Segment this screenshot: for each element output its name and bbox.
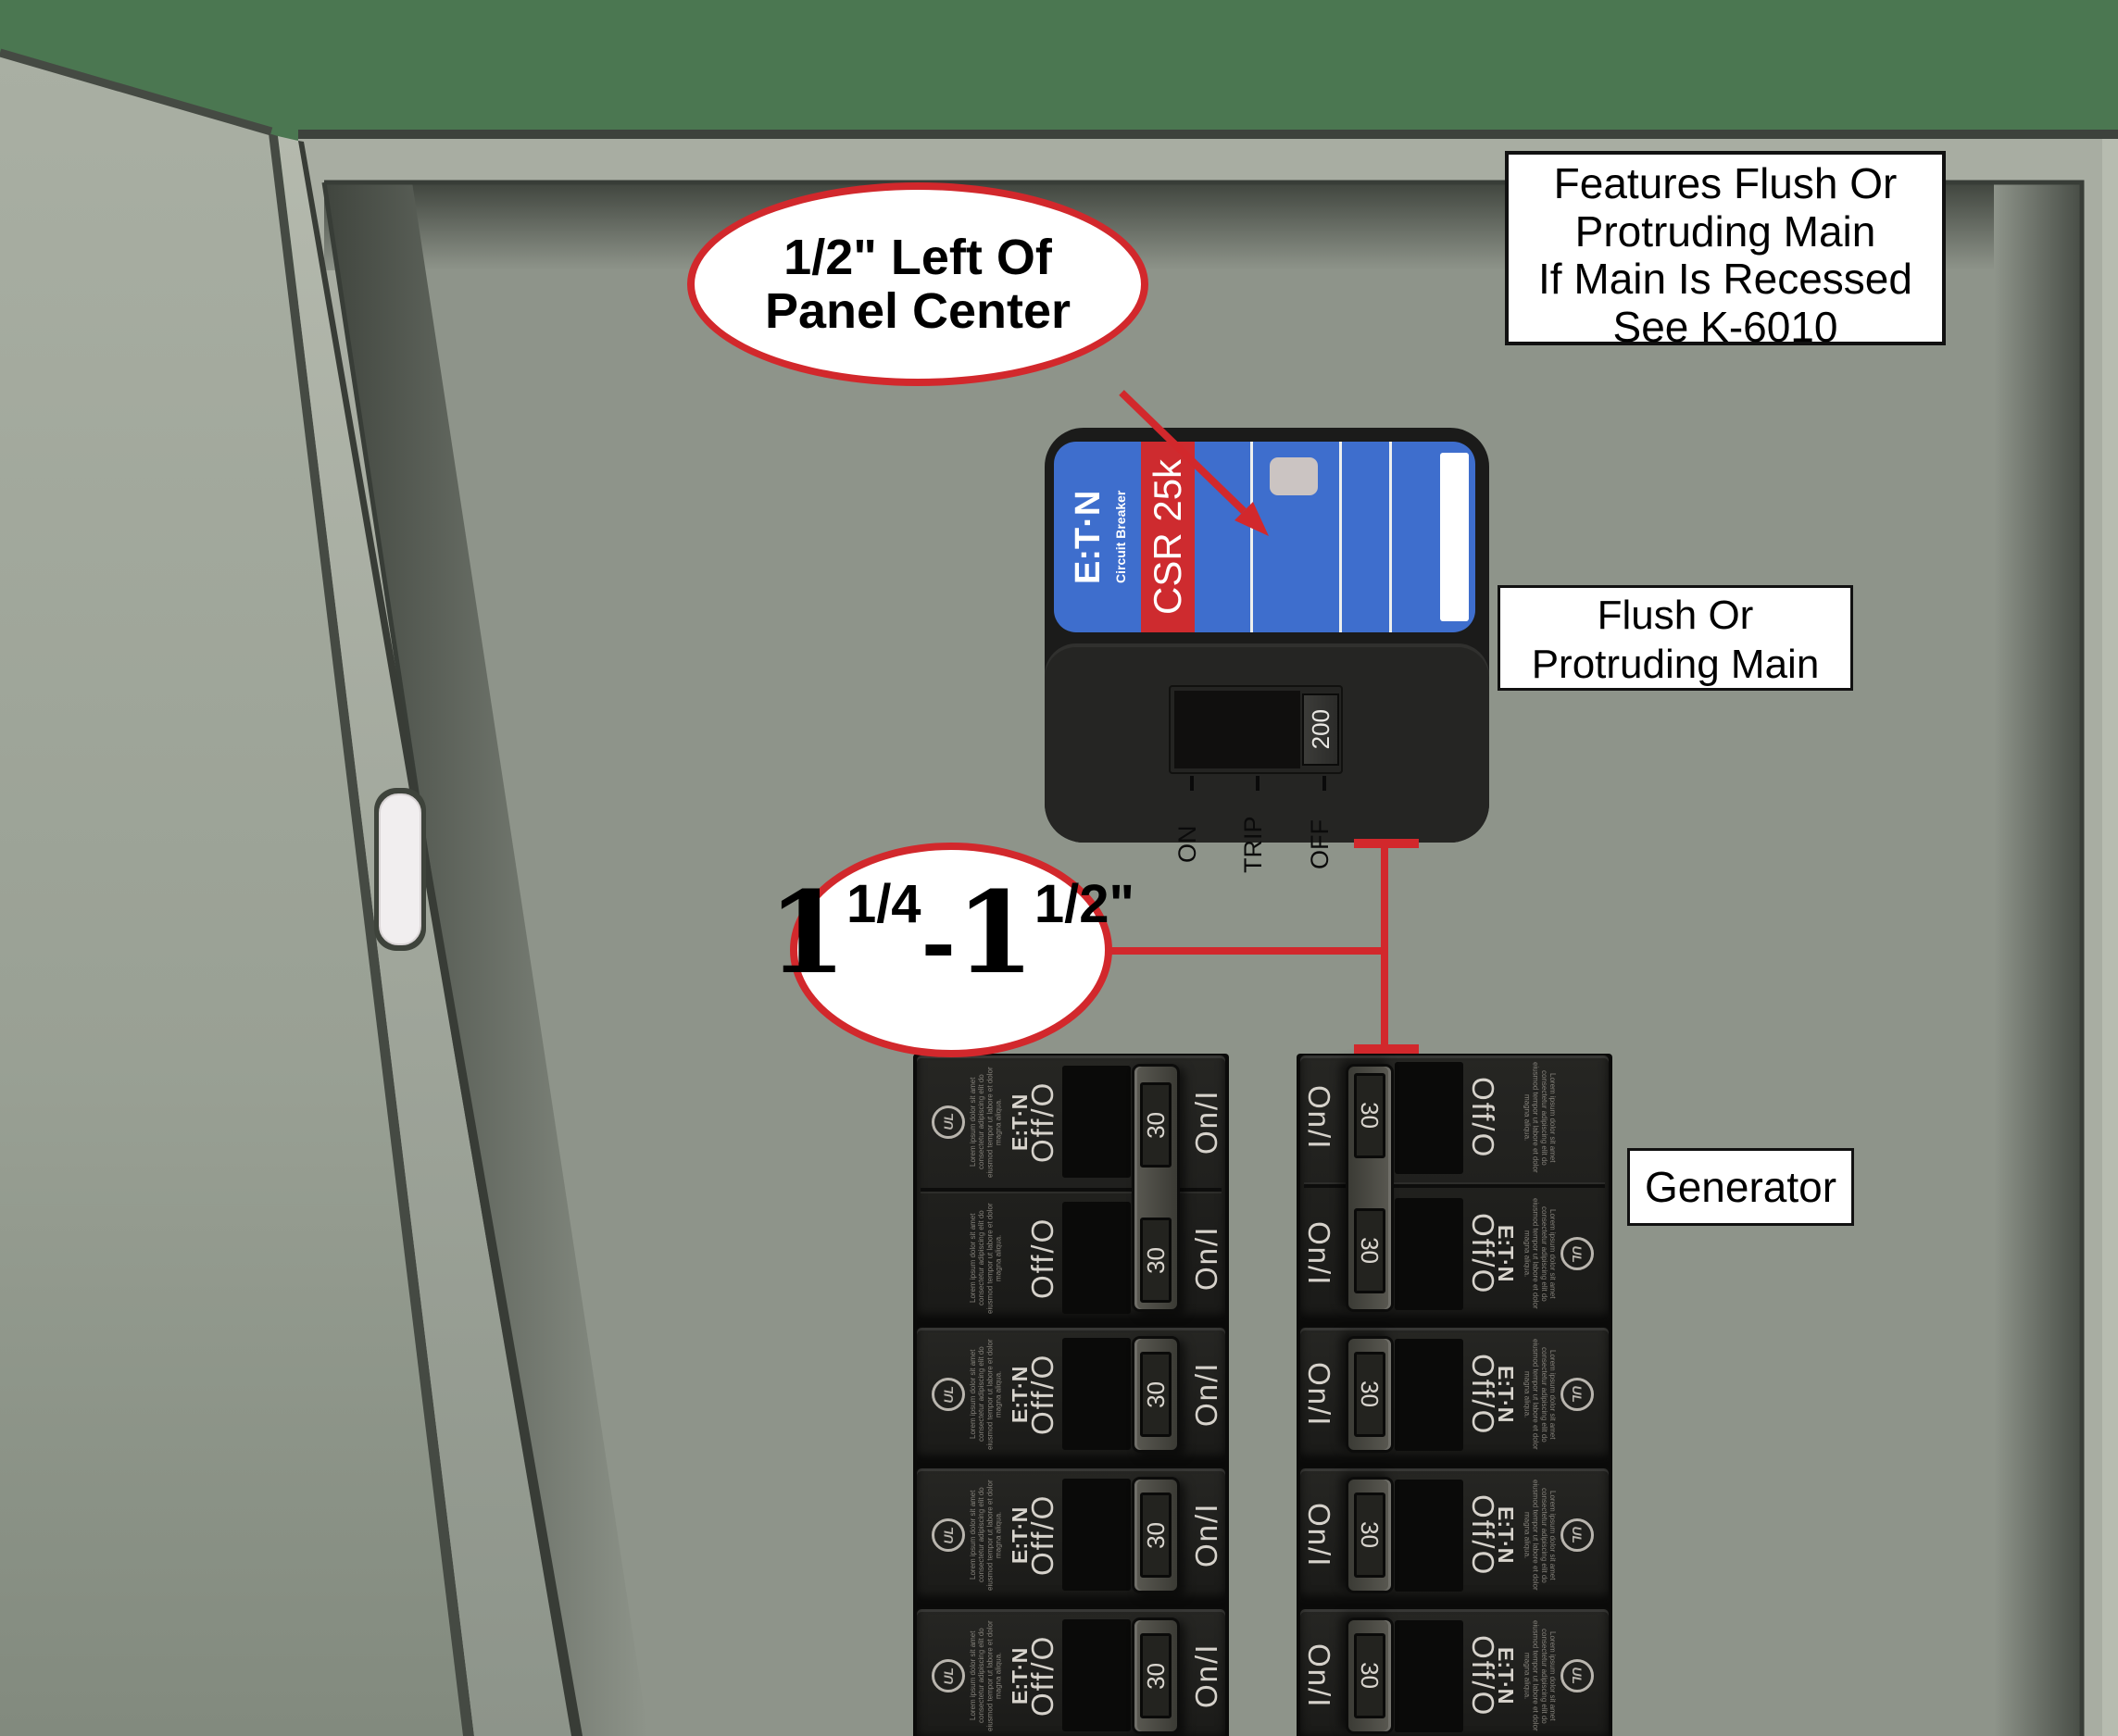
enclosure-top-edge: [298, 130, 2118, 139]
amp-handle[interactable]: 30: [1140, 1082, 1172, 1168]
spacing-whole1: 1: [768, 876, 846, 989]
ul-logo-icon: UL: [932, 1105, 965, 1139]
breaker-toggle[interactable]: 30: [1132, 1477, 1180, 1593]
position-label-on: ON: [1173, 793, 1210, 896]
ul-logo-icon: UL: [932, 1659, 965, 1692]
breaker-label-window: [1062, 1619, 1131, 1731]
amp-handle[interactable]: 30: [1140, 1492, 1172, 1578]
ul-logo-icon: UL: [1560, 1518, 1594, 1552]
off-label: Off/O: [1465, 1470, 1500, 1600]
breaker-toggle[interactable]: 30: [1132, 1617, 1180, 1734]
off-label: Off/O: [1465, 1611, 1500, 1736]
label-white-bar: [1440, 453, 1469, 621]
generator-label: Generator: [1645, 1162, 1836, 1212]
breaker-unit: UL Lorem ipsum dolor sit amet consectetu…: [915, 1467, 1227, 1604]
callout-half-inch: 1/2" Left Of Panel Center: [687, 182, 1148, 386]
breaker-label-window: [1395, 1620, 1463, 1732]
label-divider-line: [1339, 442, 1342, 632]
on-label: On/I: [1189, 1193, 1224, 1323]
label-divider-line: [1389, 442, 1392, 632]
breaker-unit-2pole: UL Lorem ipsum dolor sit amet consectetu…: [915, 1054, 1227, 1322]
on-label: On/I: [1189, 1330, 1224, 1459]
on-label: On/I: [1301, 1470, 1336, 1600]
recess-shadow-right: [1994, 182, 2082, 1736]
on-label: On/I: [1189, 1470, 1224, 1600]
breaker-label-window: [1395, 1339, 1463, 1451]
spacing-dash: -: [921, 902, 956, 985]
breaker-fine-print: Lorem ipsum dolor sit amet consectetur a…: [969, 1203, 1008, 1314]
on-label: On/I: [1301, 1611, 1336, 1736]
off-label: Off/O: [1025, 1057, 1060, 1187]
breaker-label-window: [1062, 1066, 1131, 1178]
on-label: On/I: [1301, 1053, 1336, 1182]
amp-handle[interactable]: 30: [1354, 1352, 1385, 1437]
breaker-unit: UL Lorem ipsum dolor sit amet consectetu…: [915, 1607, 1227, 1736]
off-label: Off/O: [1025, 1193, 1060, 1323]
position-label-off: OFF: [1306, 793, 1343, 896]
breaker-unit: UL Lorem ipsum dolor sit amet consectetu…: [915, 1326, 1227, 1463]
breaker-toggle[interactable]: 30 30: [1346, 1064, 1394, 1312]
amp-handle[interactable]: 30: [1354, 1492, 1385, 1578]
breaker-label-window: [1395, 1062, 1463, 1174]
ul-logo-icon: UL: [932, 1378, 965, 1411]
on-label: On/I: [1301, 1330, 1336, 1459]
breaker-label-window: [1062, 1202, 1131, 1314]
off-label: Off/O: [1465, 1053, 1500, 1182]
switch-cavity: [1174, 691, 1300, 768]
eaton-logo: E:T·N: [1069, 449, 1109, 625]
label-sticker: [1270, 457, 1318, 495]
eaton-logo-subtitle: Circuit Breaker: [1113, 449, 1128, 625]
breaker-toggle[interactable]: 30: [1346, 1336, 1394, 1453]
breaker-label-window: [1395, 1480, 1463, 1592]
note-line: Protruding Main: [1500, 641, 1850, 690]
note-generator: Generator: [1627, 1148, 1854, 1226]
breaker-label-window: [1062, 1479, 1131, 1591]
ul-logo-icon: UL: [1560, 1378, 1594, 1411]
callout-breaker-spacing: 1 1/4 - 1 1/2 ": [790, 843, 1112, 1057]
breaker-fine-print: Lorem ipsum dolor sit amet consectetur a…: [1518, 1198, 1557, 1309]
callout-line2: Panel Center: [765, 284, 1071, 338]
model-stripe: CSR 25k: [1141, 442, 1195, 632]
panel-diagram: E:T·N Circuit Breaker CSR 25k 200 ON TRI…: [0, 0, 2118, 1736]
off-label: Off/O: [1025, 1330, 1060, 1459]
breaker-toggle[interactable]: 30: [1132, 1336, 1180, 1453]
note-line: Protruding Main: [1509, 208, 1942, 256]
amp-handle[interactable]: 30: [1140, 1352, 1172, 1437]
breaker-unit-2pole: UL Lorem ipsum dolor sit amet consectetu…: [1298, 1054, 1610, 1322]
breaker-unit: UL Lorem ipsum dolor sit amet consectetu…: [1298, 1467, 1610, 1604]
note-flush-main: Flush Or Protruding Main: [1498, 585, 1853, 691]
off-label: Off/O: [1465, 1330, 1500, 1459]
breaker-fine-print: Lorem ipsum dolor sit amet consectetur a…: [1518, 1620, 1557, 1731]
amp-handle[interactable]: 30: [1354, 1208, 1385, 1293]
breaker-column-left: UL Lorem ipsum dolor sit amet consectetu…: [913, 1054, 1229, 1736]
label-divider-line: [1250, 442, 1253, 632]
position-tick-trip: [1256, 776, 1260, 791]
note-line: Features Flush Or: [1509, 160, 1942, 208]
ul-logo-icon: UL: [932, 1518, 965, 1552]
breaker-fine-print: Lorem ipsum dolor sit amet consectetur a…: [1518, 1062, 1557, 1173]
spacing-whole2: 1: [956, 876, 1034, 989]
off-label: Off/O: [1025, 1470, 1060, 1600]
breaker-fine-print: Lorem ipsum dolor sit amet consectetur a…: [1518, 1339, 1557, 1450]
eaton-brand-block: E:T·N Circuit Breaker: [1069, 449, 1128, 625]
off-label: Off/O: [1025, 1611, 1060, 1736]
main-breaker-switch-window: 200: [1169, 685, 1343, 774]
breaker-label-window: [1062, 1338, 1131, 1450]
note-features-main: Features Flush Or Protruding Main If Mai…: [1505, 151, 1946, 345]
breaker-column-right: UL Lorem ipsum dolor sit amet consectetu…: [1297, 1054, 1612, 1736]
spacing-frac2: 1/2: [1034, 878, 1109, 931]
amp-handle[interactable]: 30: [1354, 1073, 1385, 1158]
breaker-fine-print: Lorem ipsum dolor sit amet consectetur a…: [969, 1480, 1008, 1591]
ul-logo-icon: UL: [1560, 1238, 1594, 1271]
main-breaker: E:T·N Circuit Breaker CSR 25k 200 ON TRI…: [1045, 428, 1489, 843]
main-breaker-label: E:T·N Circuit Breaker CSR 25k: [1054, 442, 1475, 632]
breaker-toggle[interactable]: 30: [1346, 1617, 1394, 1734]
main-breaker-handle[interactable]: 200: [1302, 693, 1339, 766]
breaker-unit: UL Lorem ipsum dolor sit amet consectetu…: [1298, 1326, 1610, 1463]
model-text: CSR 25k: [1146, 444, 1190, 630]
amp-handle[interactable]: 30: [1354, 1633, 1385, 1718]
breaker-toggle[interactable]: 30: [1346, 1477, 1394, 1593]
off-label: Off/O: [1465, 1189, 1500, 1318]
breaker-fine-print: Lorem ipsum dolor sit amet consectetur a…: [969, 1067, 1008, 1178]
callout-line1: 1/2" Left Of: [783, 231, 1052, 284]
on-label: On/I: [1301, 1189, 1336, 1318]
spacing-unit: ": [1109, 878, 1134, 931]
breaker-fine-print: Lorem ipsum dolor sit amet consectetur a…: [969, 1620, 1008, 1731]
position-tick-on: [1190, 776, 1194, 791]
note-line: If Main Is Recessed: [1509, 256, 1942, 304]
amp-handle[interactable]: 30: [1140, 1218, 1172, 1303]
amp-handle[interactable]: 30: [1140, 1633, 1172, 1718]
position-tick-off: [1322, 776, 1326, 791]
breaker-fine-print: Lorem ipsum dolor sit amet consectetur a…: [969, 1339, 1008, 1450]
main-rating: 200: [1307, 709, 1335, 749]
breaker-label-window: [1395, 1198, 1463, 1310]
spacing-frac1: 1/4: [846, 878, 921, 931]
door-handle[interactable]: [380, 794, 420, 944]
note-line: Flush Or: [1500, 592, 1850, 641]
enclosure-right-edge: [2102, 139, 2118, 1736]
breaker-toggle[interactable]: 30 30: [1132, 1064, 1180, 1312]
on-label: On/I: [1189, 1057, 1224, 1187]
note-line: See K-6010: [1509, 304, 1942, 352]
position-label-trip: TRIP: [1239, 793, 1276, 896]
on-label: On/I: [1189, 1611, 1224, 1736]
breaker-fine-print: Lorem ipsum dolor sit amet consectetur a…: [1518, 1480, 1557, 1591]
ul-logo-icon: UL: [1560, 1659, 1594, 1692]
breaker-unit: UL Lorem ipsum dolor sit amet consectetu…: [1298, 1607, 1610, 1736]
